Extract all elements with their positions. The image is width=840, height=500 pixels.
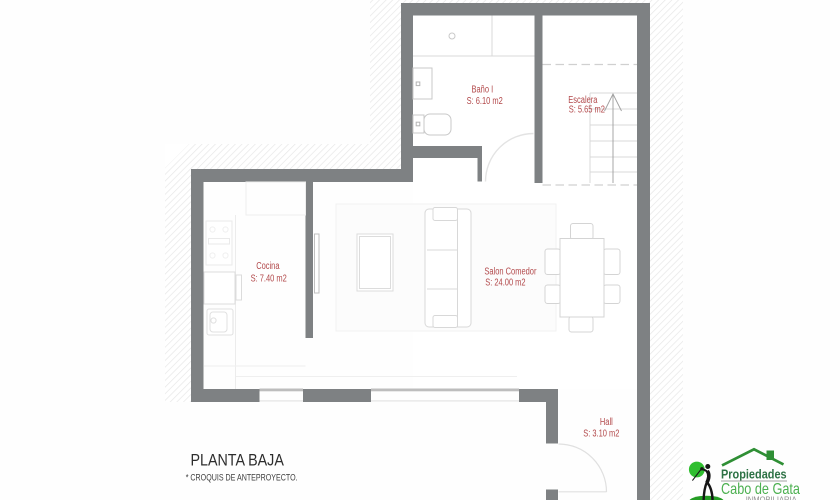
- svg-text:S: 3.10 m2: S: 3.10 m2: [583, 428, 619, 439]
- svg-text:PLANTA BAJA: PLANTA BAJA: [191, 452, 285, 470]
- svg-text:S: 7.40 m2: S: 7.40 m2: [251, 272, 287, 283]
- svg-text:Cocina: Cocina: [256, 260, 279, 271]
- svg-text:Hall: Hall: [600, 416, 613, 427]
- svg-text:Propiedades: Propiedades: [721, 467, 787, 482]
- svg-text:S: 24.00 m2: S: 24.00 m2: [485, 277, 525, 288]
- svg-text:Baño I: Baño I: [472, 84, 494, 95]
- svg-text:S: 6.10 m2: S: 6.10 m2: [467, 95, 503, 106]
- svg-text:S: 5.65 m2: S: 5.65 m2: [569, 103, 605, 114]
- svg-text:* CROQUIS DE ANTEPROYECTO.: * CROQUIS DE ANTEPROYECTO.: [186, 471, 298, 482]
- svg-text:Salon Comedor: Salon Comedor: [484, 266, 536, 277]
- svg-text:INMOBILIARIA: INMOBILIARIA: [746, 495, 798, 500]
